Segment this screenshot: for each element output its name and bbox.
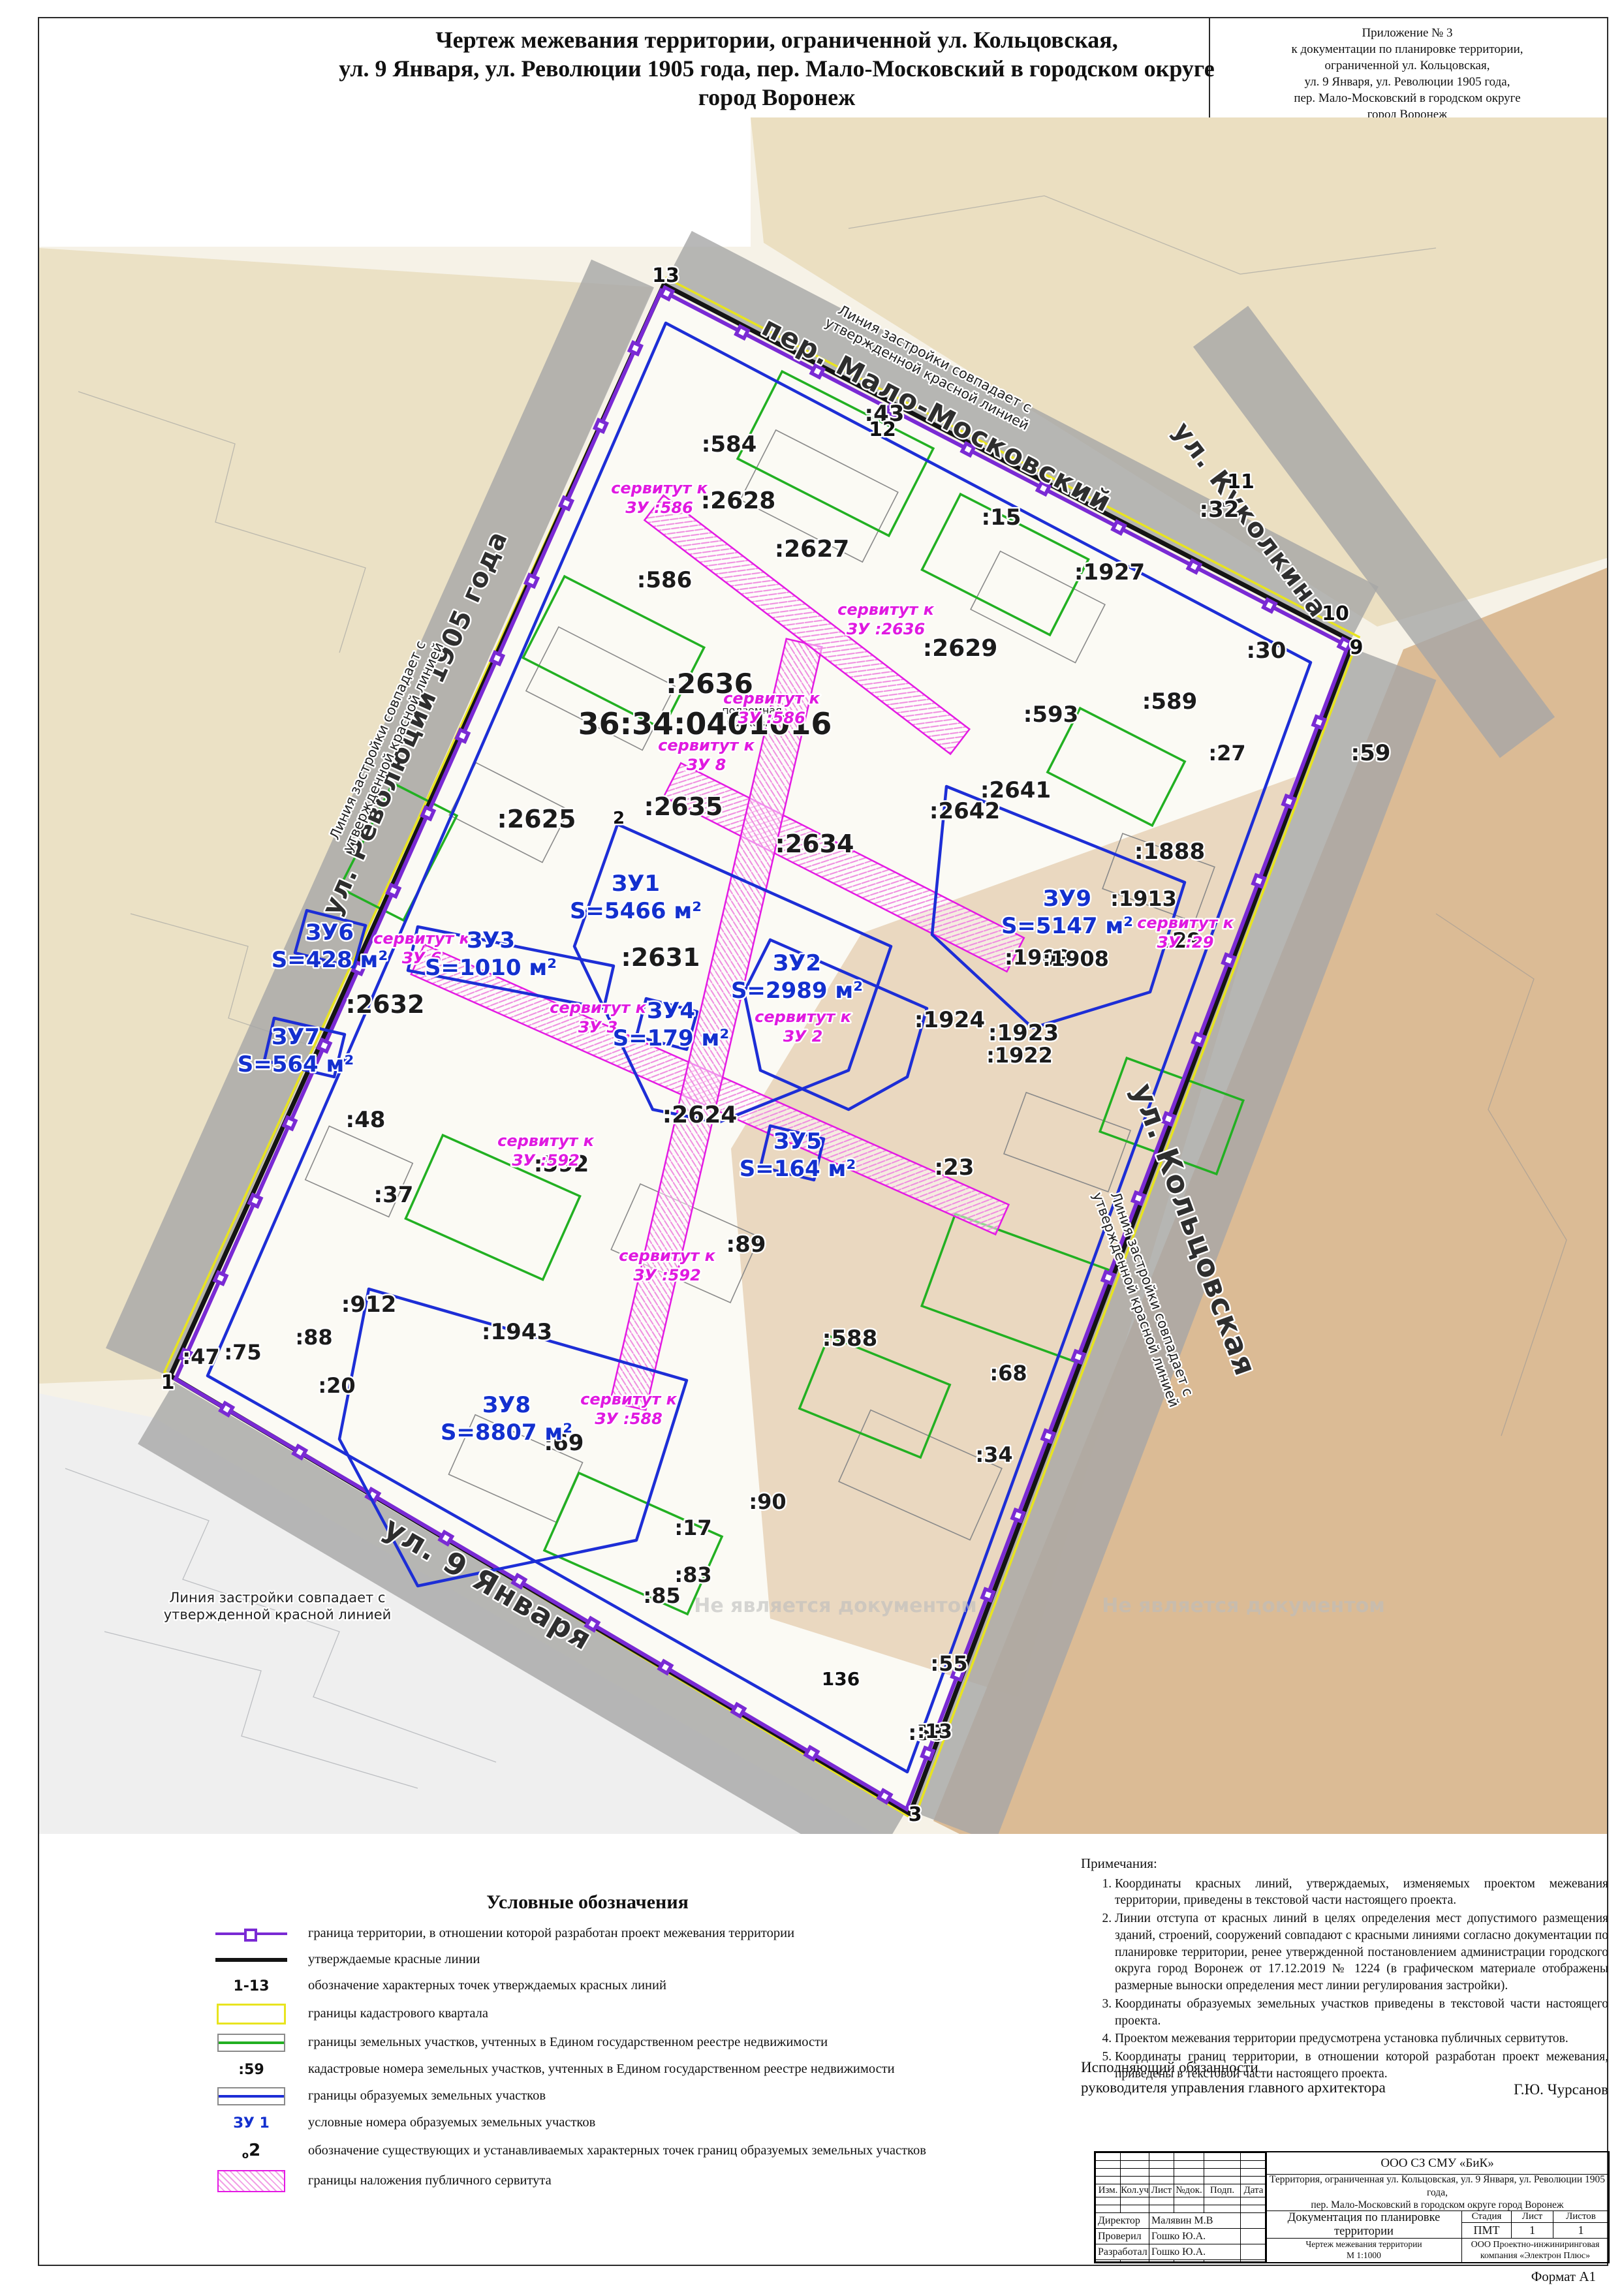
cadastral-label: :2632 xyxy=(346,990,425,1019)
point-label: 9 xyxy=(1350,636,1364,659)
note-item: Линии отступа от красных линий в целях о… xyxy=(1115,1910,1608,1994)
cadastral-label: :68 xyxy=(990,1361,1027,1386)
title-block: Изм.Кол.уч Лист№док. Подп.Дата Директор … xyxy=(1094,2151,1610,2263)
cadastral-label: :1924 xyxy=(914,1007,985,1033)
stage-table: Стадия Лист Листов ПМТ 1 1 xyxy=(1462,2211,1608,2238)
annotation-label: Не является документом xyxy=(1102,1594,1384,1617)
legend-item-servitude: границы наложения публичного сервитута xyxy=(209,2170,966,2192)
legend-item-territory: граница территории, в отношении которой … xyxy=(209,1925,966,1942)
project-name: Территория, ограниченная ул. Кольцовская… xyxy=(1266,2175,1608,2211)
revision-header-row: Изм.Кол.уч Лист№док. Подп.Дата xyxy=(1096,2184,1267,2197)
cadastral-label: :1923 xyxy=(988,1020,1059,1046)
legend-item-red-line: утверждаемые красные линии xyxy=(209,1951,966,1968)
cadastral-label: :593 xyxy=(1023,702,1079,728)
company-name: ООО СЗ СМУ «БиК» xyxy=(1266,2152,1608,2175)
cadastral-label: :2642 xyxy=(929,798,1000,824)
role-row: Директор Малявин М.В xyxy=(1096,2213,1267,2229)
cadastral-label: :2628 xyxy=(701,488,776,514)
approval-block: Исполняющий обязанности руководителя упр… xyxy=(1081,2057,1608,2098)
legend-item-red-line-points: 1-13 обозначение характерных точек утвер… xyxy=(209,1978,966,1994)
cadastral-label: :47 xyxy=(182,1344,219,1369)
cadastral-label: :2634 xyxy=(775,830,854,858)
red-line-symbol xyxy=(215,1958,287,1962)
cadastral-quarter-symbol xyxy=(217,2004,286,2025)
cadastral-label: :55 xyxy=(930,1651,967,1676)
cadastral-label: :30 xyxy=(1247,638,1287,664)
cadastral-label: :584 xyxy=(702,431,757,458)
cadastral-label: :59 xyxy=(1351,740,1391,766)
revision-table: Изм.Кол.уч Лист№док. Подп.Дата Директор … xyxy=(1095,2152,1266,2262)
legend-item-points: o2 обозначение существующих и устанавлив… xyxy=(209,2141,966,2161)
cadastral-label: :88 xyxy=(295,1325,332,1350)
formed-boundary-symbol xyxy=(217,2087,285,2105)
cadastral-label: :2631 xyxy=(621,943,700,972)
cadastral-label: :37 xyxy=(374,1182,414,1208)
servitude-symbol xyxy=(217,2170,285,2192)
point-label: 3 xyxy=(909,1803,922,1826)
point-label: 11 xyxy=(1227,471,1255,493)
note-item: Координаты образуемых земельных участков… xyxy=(1115,1996,1608,2029)
point-label: 136 xyxy=(822,1668,860,1690)
cadastral-label: :589 xyxy=(1142,689,1198,715)
legend-item-quarter: границы кадастрового квартала xyxy=(209,2004,966,2025)
cadastral-label: :32 xyxy=(1200,497,1240,523)
point-label: 12 xyxy=(869,418,896,441)
point-label: 10 xyxy=(1322,602,1349,625)
approver-name: Г.Ю. Чурсанов xyxy=(1514,2079,1608,2100)
cadastral-label: :912 xyxy=(341,1292,397,1318)
cadastral-label: :89 xyxy=(726,1232,766,1258)
legend-item-cadastral-number: :59 кадастровые номера земельных участко… xyxy=(209,2061,966,2078)
annotation-label: Не является документом xyxy=(694,1594,976,1617)
point-label: 2 xyxy=(613,809,625,828)
point-label: 1 xyxy=(161,1371,175,1394)
cadastral-label: :85 xyxy=(643,1583,680,1608)
role-row: Разработал Гошко Ю.А. xyxy=(1096,2244,1267,2260)
cadastral-label: :1913 xyxy=(1110,886,1177,911)
cadastral-label: :75 xyxy=(224,1340,261,1365)
scan-blank-corner xyxy=(39,117,751,247)
sheet-value: 1 xyxy=(1512,2223,1553,2238)
note-item: Координаты красных линий, утверждаемых, … xyxy=(1115,1876,1608,1909)
drawing-name: Чертеж межевания территории М 1:1000 xyxy=(1266,2239,1462,2262)
legend-title: Условные обозначения xyxy=(209,1891,966,1914)
cadastral-number-symbol: :59 xyxy=(238,2062,264,2078)
cadastral-label: :2629 xyxy=(923,635,998,662)
doc-type: Документация по планировке территории xyxy=(1266,2211,1462,2238)
cadastral-label: :586 xyxy=(637,567,693,593)
role-row: Проверил Гошко Ю.А. xyxy=(1096,2229,1267,2244)
cadastral-label: :1908 xyxy=(1042,946,1109,971)
legend-item-egrn: границы земельных участков, учтенных в Е… xyxy=(209,2034,966,2052)
legend: Условные обозначения граница территории,… xyxy=(209,1891,966,2201)
cadastral-label: :27 xyxy=(1208,741,1245,766)
notes: Примечания: Координаты красных линий, ут… xyxy=(1081,1855,1608,2084)
egrn-boundary-symbol xyxy=(217,2034,285,2052)
stage-value: ПМТ xyxy=(1462,2223,1512,2238)
red-line-points-symbol: 1-13 xyxy=(233,1978,269,1994)
cadastral-label: :2624 xyxy=(663,1102,738,1128)
format-label: Формат А1 xyxy=(1531,2269,1596,2285)
formed-number-symbol: ЗУ 1 xyxy=(233,2115,270,2132)
point-label: 13 xyxy=(652,264,679,287)
cadastral-label: :2627 xyxy=(775,536,850,563)
cadastral-label: :2625 xyxy=(497,805,576,833)
cadastral-label: :13 xyxy=(917,1720,952,1743)
territory-boundary-symbol xyxy=(215,1932,287,1935)
note-item: Проектом межевания территории предусмотр… xyxy=(1115,2030,1608,2047)
characteristic-point-symbol: o2 xyxy=(242,2141,260,2161)
contractor-name: ООО Проектно-инжиниринговая компания «Эл… xyxy=(1462,2239,1608,2262)
notes-heading: Примечания: xyxy=(1081,1855,1608,1873)
legend-item-formed: границы образуемых земельных участков xyxy=(209,2087,966,2105)
cadastral-label: :1927 xyxy=(1074,559,1145,585)
cadastral-label: :34 xyxy=(975,1442,1012,1467)
cadastral-label: :2635 xyxy=(644,792,723,821)
cadastral-label: :90 xyxy=(749,1489,786,1514)
cadastral-label: :23 xyxy=(935,1155,975,1181)
cadastral-label: :588 xyxy=(822,1326,878,1352)
cadastral-label: :48 xyxy=(346,1107,386,1133)
cadastral-label: :20 xyxy=(318,1373,355,1398)
cadastral-label: :1888 xyxy=(1134,839,1205,865)
sheets-value: 1 xyxy=(1553,2223,1608,2238)
cadastral-label: :15 xyxy=(982,504,1022,531)
cadastral-label: :17 xyxy=(674,1515,711,1540)
drawing-sheet: Чертеж межевания территории, ограниченно… xyxy=(0,0,1622,2296)
cadastral-label: :1922 xyxy=(986,1043,1053,1068)
cadastral-label: :1943 xyxy=(482,1319,552,1345)
legend-item-formed-number: ЗУ 1 условные номера образуемых земельны… xyxy=(209,2115,966,2132)
